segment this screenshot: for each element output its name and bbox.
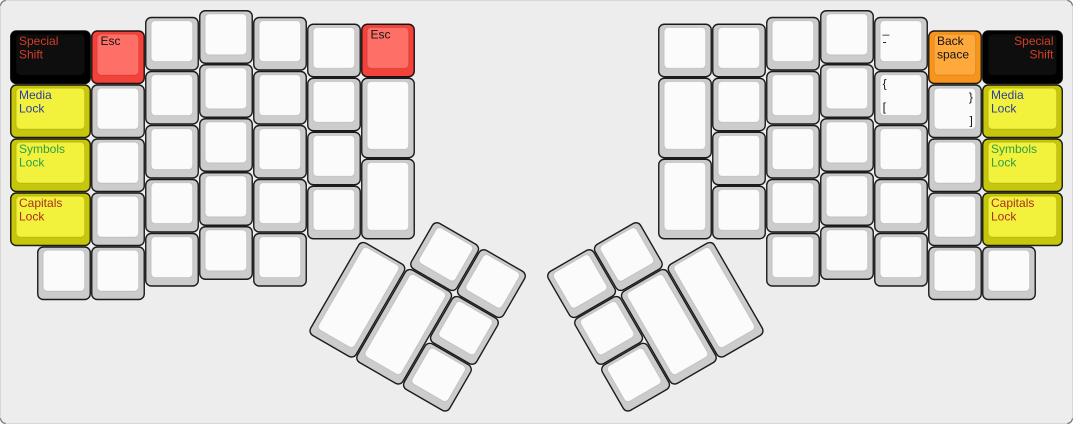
svg-text:Shift: Shift — [1029, 47, 1054, 61]
svg-text:Media: Media — [991, 88, 1024, 102]
svg-text:Lock: Lock — [19, 101, 45, 115]
svg-text:Esc: Esc — [371, 27, 391, 41]
svg-text:-: - — [883, 35, 887, 49]
svg-text:Lock: Lock — [991, 209, 1017, 223]
svg-text:space: space — [937, 47, 969, 61]
svg-text:Esc: Esc — [101, 34, 121, 48]
svg-text:Shift: Shift — [19, 47, 44, 61]
svg-text:Media: Media — [19, 88, 52, 102]
svg-text:Symbols: Symbols — [991, 142, 1037, 156]
svg-text:Back: Back — [937, 34, 965, 48]
svg-text:Lock: Lock — [19, 209, 45, 223]
svg-text:Lock: Lock — [991, 101, 1017, 115]
svg-text:Symbols: Symbols — [19, 142, 65, 156]
svg-text:Lock: Lock — [991, 155, 1017, 169]
svg-text:Lock: Lock — [19, 155, 45, 169]
svg-text:{: { — [883, 76, 887, 90]
svg-text:Capitals: Capitals — [991, 196, 1034, 210]
svg-text:Special: Special — [19, 34, 58, 48]
svg-text:Capitals: Capitals — [19, 196, 62, 210]
svg-text:Special: Special — [1014, 34, 1053, 48]
svg-text:]: ] — [970, 114, 973, 128]
svg-text:}: } — [969, 90, 973, 104]
